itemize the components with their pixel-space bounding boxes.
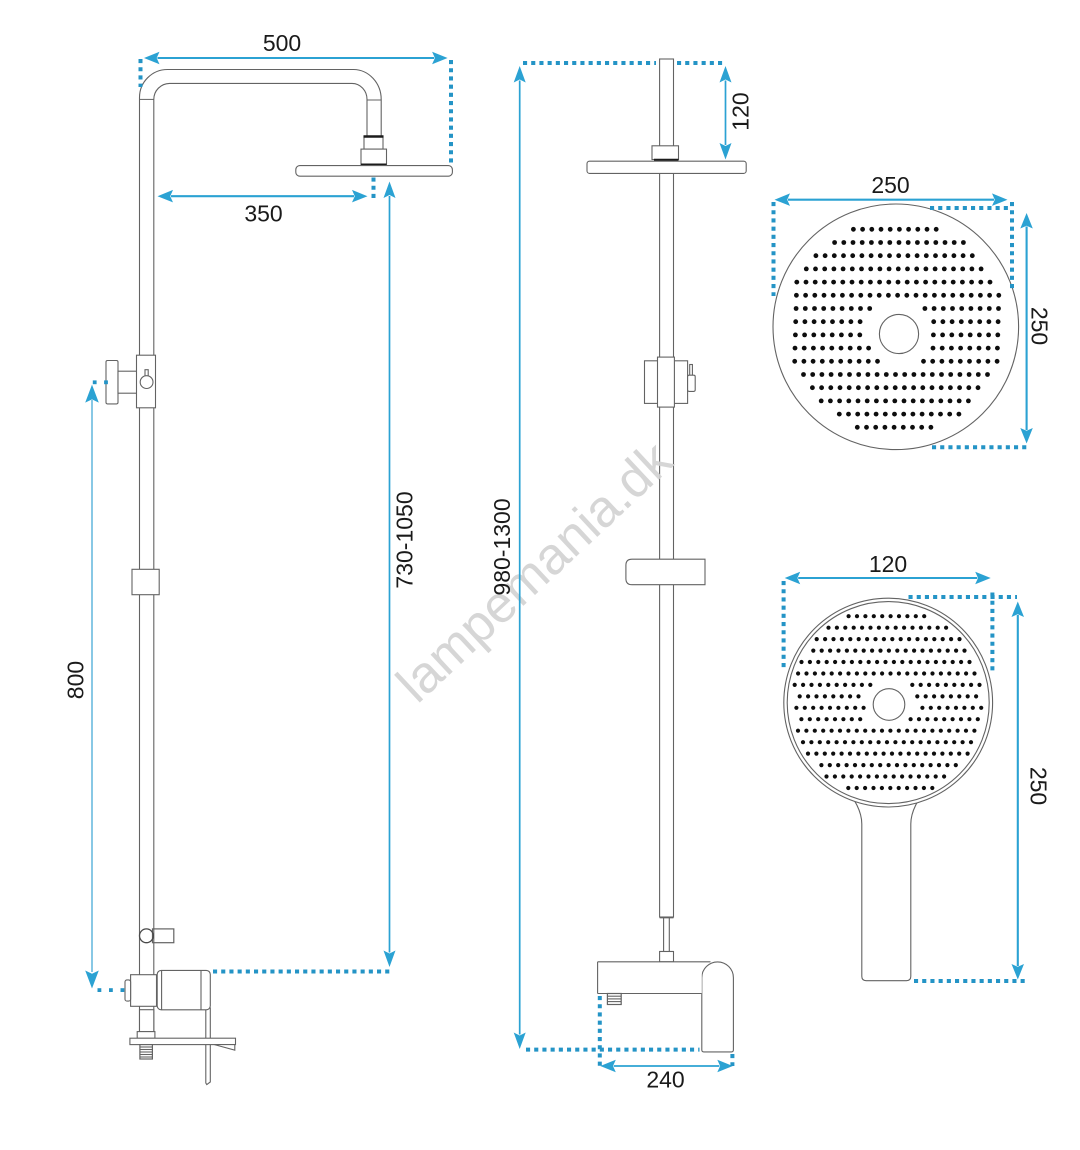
svg-text:350: 350 [244,201,282,227]
svg-text:250: 250 [871,172,909,198]
svg-text:800: 800 [63,661,89,699]
svg-text:980-1300: 980-1300 [489,498,515,595]
svg-text:500: 500 [263,30,301,56]
svg-text:240: 240 [646,1067,684,1093]
svg-text:250: 250 [1026,767,1052,805]
svg-text:250: 250 [1027,307,1053,345]
svg-text:120: 120 [869,551,907,577]
svg-text:120: 120 [728,92,754,130]
svg-text:730-1050: 730-1050 [391,491,417,588]
